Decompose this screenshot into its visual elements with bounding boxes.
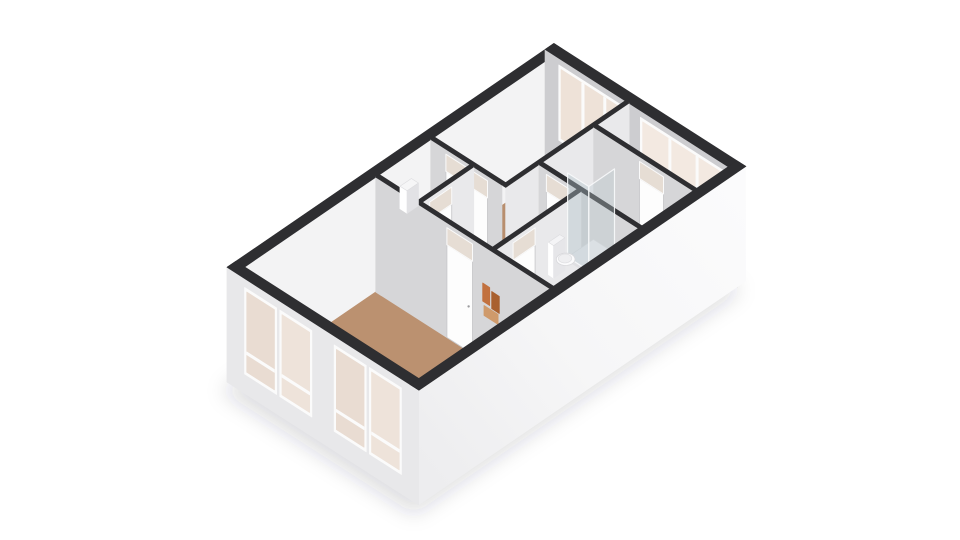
floorplan-3d-view (0, 0, 960, 540)
floorplan-page (0, 0, 960, 540)
toilet-seat (558, 254, 571, 263)
door-handle-icon (467, 305, 469, 307)
door (447, 228, 473, 354)
scene-root (222, 43, 746, 514)
